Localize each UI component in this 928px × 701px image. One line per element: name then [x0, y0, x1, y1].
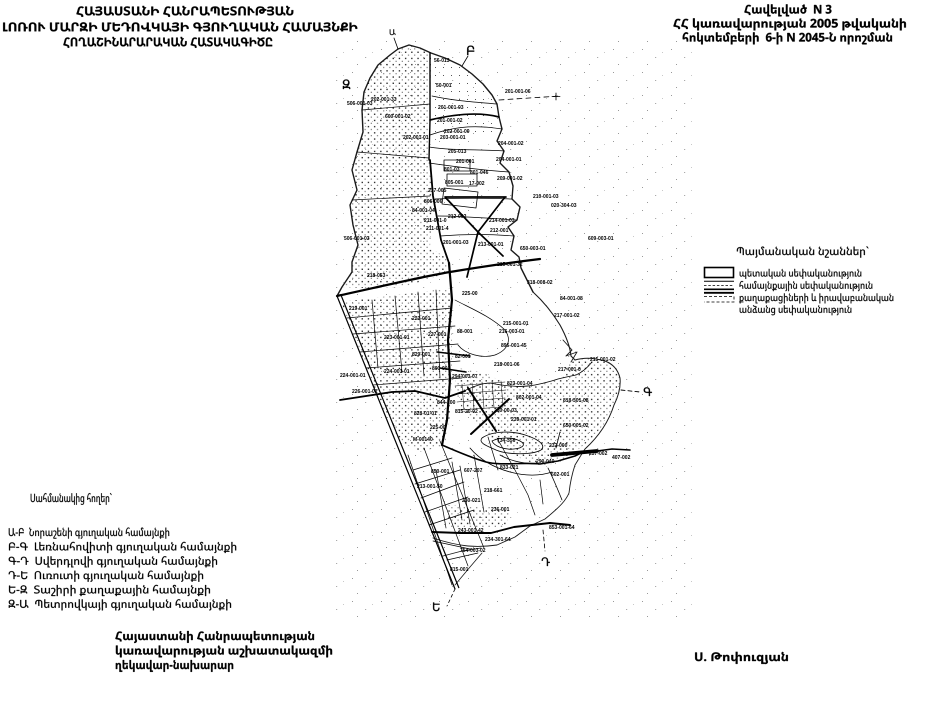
svg-text:202-001-01: 202-001-01 — [403, 135, 429, 141]
svg-text:650-001-02: 650-001-02 — [563, 423, 589, 429]
svg-text:214-001-03: 214-001-03 — [489, 218, 515, 224]
svg-text:815-20-02: 815-20-02 — [455, 409, 478, 415]
svg-text:88-001: 88-001 — [457, 329, 473, 335]
svg-text:802-001-04: 802-001-04 — [516, 395, 542, 401]
svg-text:17-002: 17-002 — [469, 181, 485, 187]
svg-text:230-021: 230-021 — [462, 498, 481, 504]
svg-text:237-002: 237-002 — [589, 451, 608, 457]
svg-text:82-001: 82-001 — [455, 354, 471, 360]
svg-text:506-001-03: 506-001-03 — [344, 236, 370, 242]
svg-text:236-001: 236-001 — [491, 507, 510, 513]
svg-text:609-003-01: 609-003-01 — [588, 236, 614, 242]
svg-text:506-001-03: 506-001-03 — [347, 101, 373, 107]
svg-text:84-001-04: 84-001-04 — [412, 208, 435, 214]
svg-text:829-001: 829-001 — [412, 352, 431, 358]
svg-text:218-053: 218-053 — [367, 273, 386, 279]
svg-text:216-003-01: 216-003-01 — [499, 329, 525, 335]
svg-text:205-013: 205-013 — [448, 149, 467, 155]
svg-text:226-001-01: 226-001-01 — [352, 389, 378, 395]
svg-text:84-001-08: 84-001-08 — [560, 296, 583, 302]
svg-text:209-001-02: 209-001-02 — [497, 176, 523, 182]
svg-text:805-001: 805-001 — [445, 180, 464, 186]
svg-text:853-001-64: 853-001-64 — [549, 525, 575, 531]
svg-text:217-001-0: 217-001-0 — [558, 367, 581, 373]
svg-text:754-003-02: 754-003-02 — [460, 548, 486, 554]
svg-text:225-00: 225-00 — [462, 291, 478, 297]
svg-text:217-001-02: 217-001-02 — [554, 313, 580, 319]
svg-text:800-001: 800-001 — [432, 366, 451, 372]
svg-text:806-006: 806-006 — [424, 199, 443, 205]
svg-text:M-00140: M-00140 — [413, 437, 433, 443]
svg-text:215-001-02: 215-001-02 — [590, 357, 616, 363]
svg-text:211-001-0: 211-001-0 — [424, 218, 447, 224]
svg-text:823-001-04: 823-001-04 — [507, 381, 533, 387]
svg-text:020-304-03: 020-304-03 — [551, 203, 577, 209]
svg-text:239-001-01: 239-001-01 — [511, 417, 537, 423]
svg-text:202-001-33: 202-001-33 — [371, 97, 397, 103]
svg-text:850-001: 850-001 — [431, 469, 450, 475]
svg-text:204-001-02: 204-001-02 — [498, 141, 524, 147]
svg-text:896-001-45: 896-001-45 — [501, 343, 527, 349]
svg-text:212-001: 212-001 — [490, 228, 509, 234]
svg-text:227-001: 227-001 — [428, 332, 447, 338]
svg-text:218-661: 218-661 — [484, 488, 503, 494]
svg-text:201-001-03: 201-001-03 — [438, 105, 464, 111]
svg-text:407-002: 407-002 — [612, 455, 631, 461]
svg-text:602-001: 602-001 — [551, 472, 570, 478]
svg-text:212-002: 212-002 — [448, 214, 467, 220]
svg-text:203-001-01: 203-001-01 — [440, 135, 466, 141]
svg-text:223-001: 223-001 — [412, 316, 431, 322]
svg-text:215-001-01: 215-001-01 — [503, 321, 529, 327]
svg-text:294-003-07: 294-003-07 — [452, 374, 478, 380]
svg-text:201-001-02: 201-001-02 — [437, 118, 463, 124]
svg-text:607-207: 607-207 — [464, 468, 483, 474]
svg-text:50-001: 50-001 — [436, 83, 452, 89]
svg-text:243-001-42: 243-001-42 — [458, 528, 484, 534]
svg-text:801-046: 801-046 — [470, 170, 489, 176]
svg-text:600-001-02: 600-001-02 — [385, 114, 411, 120]
svg-text:290-040: 290-040 — [536, 459, 555, 465]
svg-text:223-001-01: 223-001-01 — [384, 335, 410, 341]
svg-text:818-301-08: 818-301-08 — [563, 398, 589, 404]
svg-text:801-03: 801-03 — [444, 167, 460, 173]
svg-text:224-001-01: 224-001-01 — [384, 369, 410, 375]
svg-text:56-013: 56-013 — [434, 58, 450, 64]
svg-text:211-001-4: 211-001-4 — [426, 226, 449, 232]
svg-text:318-008-02: 318-008-02 — [527, 280, 553, 286]
svg-text:844-200: 844-200 — [437, 400, 456, 406]
svg-text:219-001: 219-001 — [349, 306, 368, 312]
svg-text:232-000: 232-000 — [549, 443, 568, 449]
svg-text:234-301-64: 234-301-64 — [485, 537, 511, 543]
svg-text:215-001-32: 215-001-32 — [497, 262, 523, 268]
svg-text:213-001-50: 213-001-50 — [417, 484, 443, 490]
svg-text:225-00: 225-00 — [430, 425, 446, 431]
svg-text:201-001-03: 201-001-03 — [443, 240, 469, 246]
svg-text:833-021: 833-021 — [500, 465, 519, 471]
svg-text:230-00-03: 230-00-03 — [494, 408, 517, 414]
svg-text:201-001: 201-001 — [456, 159, 475, 165]
svg-text:815-001: 815-001 — [450, 567, 469, 573]
svg-text:224-001-01: 224-001-01 — [340, 373, 366, 379]
svg-text:213-001-01: 213-001-01 — [478, 242, 504, 248]
svg-text:828-01-01: 828-01-01 — [414, 411, 437, 417]
svg-text:217-005: 217-005 — [428, 188, 447, 194]
svg-text:650-003-01: 650-003-01 — [520, 246, 546, 252]
svg-text:204-001-01: 204-001-01 — [496, 157, 522, 163]
svg-text:218-001-06: 218-001-06 — [494, 362, 520, 368]
svg-text:201-001-06: 201-001-06 — [505, 89, 531, 95]
svg-text:210-001-03: 210-001-03 — [533, 194, 559, 200]
svg-text:734-356: 734-356 — [497, 438, 516, 444]
